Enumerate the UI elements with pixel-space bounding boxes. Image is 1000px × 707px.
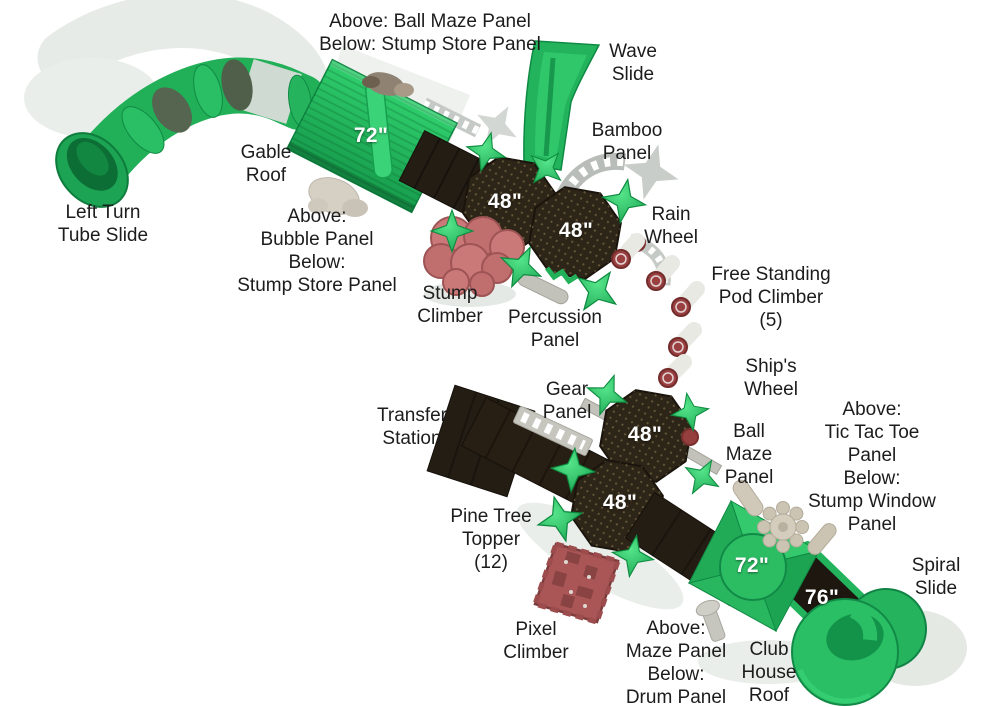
label-line: Slide — [912, 577, 961, 600]
label-line: Pine Tree — [450, 505, 531, 528]
label-line: Bamboo — [592, 119, 663, 142]
playground-diagram: Above: Ball Maze Panel Below: Stump Stor… — [0, 0, 1000, 707]
tube-clear-section — [246, 84, 294, 99]
pod — [647, 263, 672, 290]
label-bamboo-panel: Bamboo Panel — [592, 119, 663, 165]
label-tic-tac-toe: Above: Tic Tac Toe Panel Below: Stump Wi… — [808, 398, 936, 536]
label-line: Tic Tac Toe — [808, 421, 936, 444]
label-line: Gear — [543, 378, 592, 401]
label-wave-slide: Wave Slide — [609, 40, 657, 86]
label-line: Tube Slide — [58, 224, 148, 247]
label-line: Station — [377, 427, 447, 450]
label-pixel-climber: Pixel Climber — [503, 618, 568, 664]
label-line: Wheel — [644, 226, 698, 249]
label-gear-panel: Gear Panel — [543, 378, 592, 424]
panel-detail — [362, 76, 380, 88]
label-line: Maze Panel — [626, 640, 726, 663]
deck-size-label: 48" — [559, 219, 593, 243]
label-line: Topper — [450, 528, 531, 551]
label-line: Panel — [592, 142, 663, 165]
drum-panel-graphic — [682, 429, 698, 445]
label-line: Roof — [742, 684, 797, 707]
pod — [672, 289, 697, 316]
label-maze-drum: Above: Maze Panel Below: Drum Panel — [626, 617, 726, 707]
label-line: Pixel — [503, 618, 568, 641]
label-line: Bubble Panel — [237, 228, 396, 251]
label-rain-wheel: Rain Wheel — [644, 203, 698, 249]
deck-size-label: 76" — [805, 586, 839, 610]
label-line: Panel — [808, 513, 936, 536]
label-pod-climber: Free Standing Pod Climber (5) — [711, 263, 830, 332]
deck-size-label: 48" — [488, 190, 522, 214]
label-line: Ball — [725, 420, 774, 443]
label-line: Drum Panel — [626, 686, 726, 707]
playground-render — [0, 0, 1000, 707]
label-ball-maze-stump-store: Above: Ball Maze Panel Below: Stump Stor… — [319, 10, 541, 56]
label-line: Free Standing — [711, 263, 830, 286]
label-line: Spiral — [912, 554, 961, 577]
label-line: Ship's — [744, 355, 798, 378]
label-line: Below: — [808, 467, 936, 490]
label-line: Panel — [725, 466, 774, 489]
label-line: House — [742, 661, 797, 684]
label-line: Climber — [503, 641, 568, 664]
deck-size-label: 72" — [354, 124, 388, 148]
label-line: Stump — [417, 282, 482, 305]
label-line: Stump Store Panel — [237, 274, 396, 297]
label-line: Above: Ball Maze Panel — [319, 10, 541, 33]
label-percussion-panel: Percussion Panel — [508, 306, 602, 352]
label-line: Panel — [508, 329, 602, 352]
label-stump-climber: Stump Climber — [417, 282, 482, 328]
label-pine-tree-topper: Pine Tree Topper (12) — [450, 505, 531, 574]
label-line: (5) — [711, 309, 830, 332]
label-line: Maze — [725, 443, 774, 466]
label-left-turn-tube-slide: Left Turn Tube Slide — [58, 201, 148, 247]
panel-detail — [394, 83, 414, 97]
label-line: Wheel — [744, 378, 798, 401]
wave-slide-graphic — [524, 41, 599, 170]
label-ball-maze-panel: Ball Maze Panel — [725, 420, 774, 489]
label-line: Transfer — [377, 404, 447, 427]
label-line: Club — [742, 638, 797, 661]
deck-size-label: 48" — [603, 491, 637, 515]
pod — [659, 362, 684, 387]
label-transfer-station: Transfer Station — [377, 404, 447, 450]
label-line: Below: — [626, 663, 726, 686]
label-bubble-panel: Above: Bubble Panel Below: Stump Store P… — [237, 205, 396, 297]
label-spiral-slide: Spiral Slide — [912, 554, 961, 600]
label-line: Roof — [241, 164, 292, 187]
label-line: Panel — [808, 444, 936, 467]
label-line: Above: — [237, 205, 396, 228]
label-club-house-roof: Club House Roof — [742, 638, 797, 707]
label-line: Climber — [417, 305, 482, 328]
label-line: Slide — [609, 63, 657, 86]
label-line: Below: Stump Store Panel — [319, 33, 541, 56]
label-line: Above: — [626, 617, 726, 640]
label-ships-wheel: Ship's Wheel — [744, 355, 798, 401]
deck-size-label: 72" — [735, 554, 769, 578]
label-line: Stump Window — [808, 490, 936, 513]
label-line: Below: — [237, 251, 396, 274]
label-line: Left Turn — [58, 201, 148, 224]
label-line: (12) — [450, 551, 531, 574]
label-line: Pod Climber — [711, 286, 830, 309]
label-line: Rain — [644, 203, 698, 226]
label-line: Percussion — [508, 306, 602, 329]
pod — [669, 330, 694, 356]
label-line: Wave — [609, 40, 657, 63]
label-gable-roof: Gable Roof — [241, 141, 292, 187]
label-line: Panel — [543, 401, 592, 424]
label-line: Above: — [808, 398, 936, 421]
deck-size-label: 48" — [628, 423, 662, 447]
label-line: Gable — [241, 141, 292, 164]
